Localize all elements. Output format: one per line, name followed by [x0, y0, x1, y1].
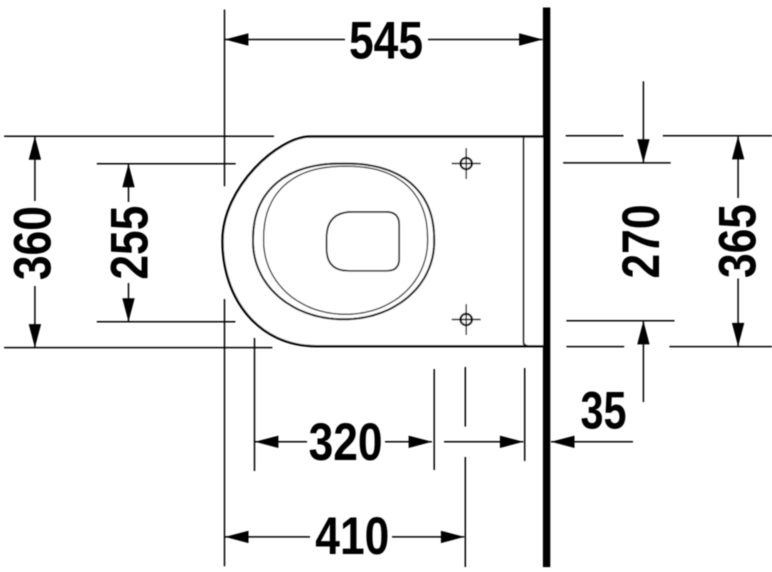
svg-text:360: 360	[4, 206, 63, 280]
svg-text:35: 35	[581, 381, 627, 440]
svg-text:365: 365	[708, 204, 767, 278]
svg-text:545: 545	[349, 11, 423, 70]
svg-text:320: 320	[309, 413, 383, 472]
svg-text:255: 255	[100, 206, 159, 280]
svg-text:410: 410	[315, 507, 389, 566]
svg-text:270: 270	[612, 205, 671, 279]
